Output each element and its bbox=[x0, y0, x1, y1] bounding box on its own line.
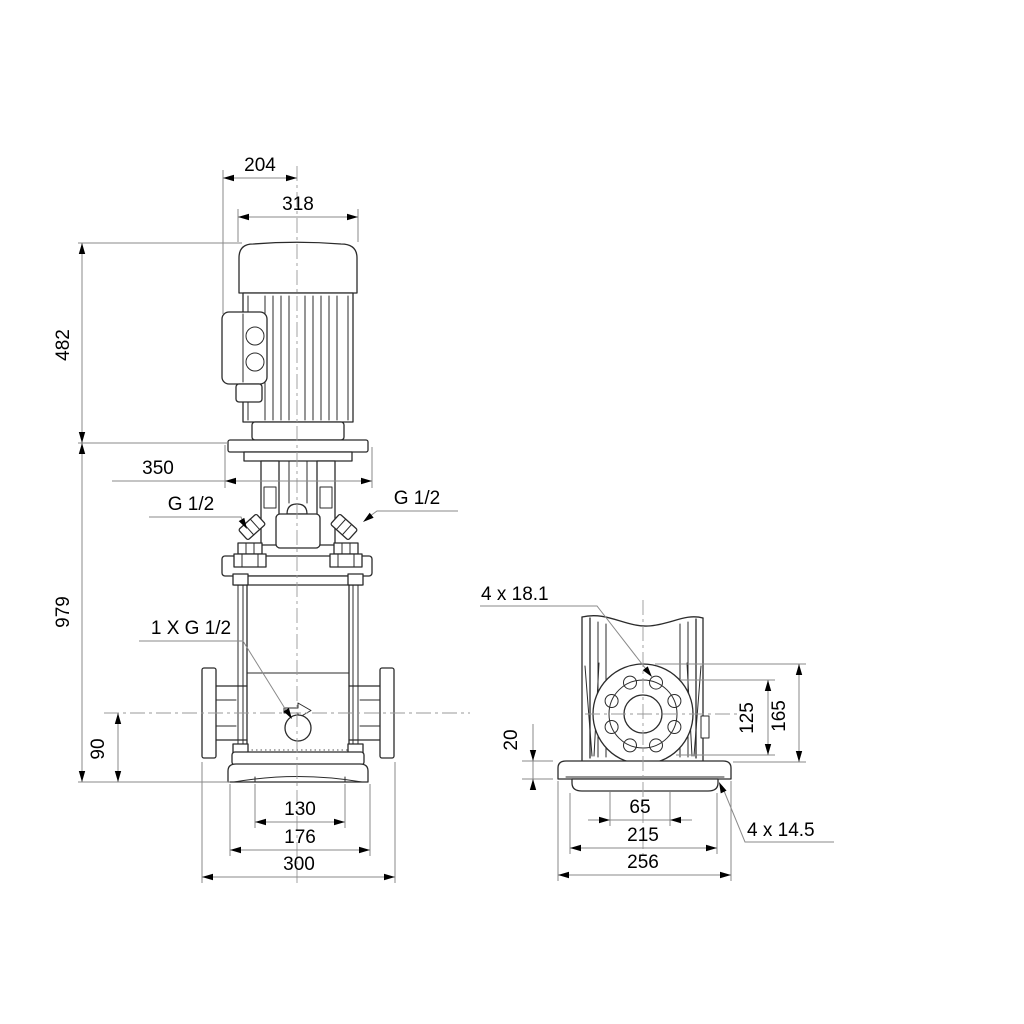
dim-318-label: 318 bbox=[282, 194, 314, 215]
dim-350-label: 350 bbox=[142, 458, 174, 479]
dim-125-label: 125 bbox=[737, 702, 758, 734]
label-base-holes: 4 x 14.5 bbox=[716, 781, 834, 842]
dim-979-label: 979 bbox=[53, 596, 74, 628]
dim-204-label: 204 bbox=[244, 155, 276, 176]
dim-130-label: 130 bbox=[284, 799, 316, 820]
label-drain-port: 1 X G 1/2 bbox=[139, 618, 295, 721]
dim-176-label: 176 bbox=[284, 827, 316, 848]
motor-top-cap bbox=[239, 242, 357, 293]
plug-boss-right bbox=[330, 543, 362, 567]
plug-boss-left bbox=[234, 543, 266, 567]
dim-482-label: 482 bbox=[53, 329, 74, 361]
motor-flange-plate2 bbox=[244, 452, 352, 461]
plug-right-label: G 1/2 bbox=[394, 488, 440, 509]
label-plug-right: G 1/2 bbox=[361, 488, 458, 525]
dim-215-label: 215 bbox=[627, 825, 659, 846]
motor bbox=[222, 242, 368, 461]
dim-165-label: 165 bbox=[769, 700, 790, 732]
drain-plug bbox=[285, 715, 311, 741]
front-view bbox=[202, 242, 394, 782]
dim-90: 90 bbox=[88, 713, 121, 782]
cable-entry-top bbox=[246, 327, 264, 345]
motor-flange-plate bbox=[228, 440, 368, 452]
dim-90-label: 90 bbox=[88, 738, 109, 759]
motor-neck bbox=[252, 422, 344, 440]
front-base bbox=[228, 752, 368, 782]
dim-482: 482 bbox=[53, 243, 242, 443]
side-view bbox=[558, 616, 731, 791]
pump-dimensional-drawing: 204 318 482 979 350 G bbox=[0, 0, 1024, 1024]
dim-300-label: 300 bbox=[283, 854, 315, 875]
nameplate-edge bbox=[701, 716, 709, 738]
label-flange-holes: 4 x 18.1 bbox=[480, 584, 655, 679]
base-holes-label: 4 x 14.5 bbox=[747, 820, 815, 841]
cable-entry-bottom bbox=[246, 353, 264, 371]
flange-holes-label: 4 x 18.1 bbox=[481, 584, 549, 605]
dim-256-label: 256 bbox=[627, 852, 659, 873]
terminal-box bbox=[222, 312, 267, 384]
dim-318: 318 bbox=[238, 194, 358, 242]
dim-20-label: 20 bbox=[501, 729, 522, 750]
dim-130: 130 bbox=[255, 784, 345, 828]
plug-left-label: G 1/2 bbox=[168, 494, 214, 515]
coupling-section bbox=[261, 461, 335, 548]
dim-65-label: 65 bbox=[629, 797, 650, 818]
drain-port-label: 1 X G 1/2 bbox=[151, 618, 231, 639]
dim-20: 20 bbox=[501, 724, 553, 790]
dim-176: 176 bbox=[230, 784, 370, 856]
coupling-block bbox=[276, 514, 320, 548]
label-plug-left: G 1/2 bbox=[149, 494, 250, 531]
terminal-box-tab bbox=[236, 384, 262, 402]
dim-65: 65 bbox=[588, 792, 692, 826]
side-base bbox=[558, 761, 731, 791]
